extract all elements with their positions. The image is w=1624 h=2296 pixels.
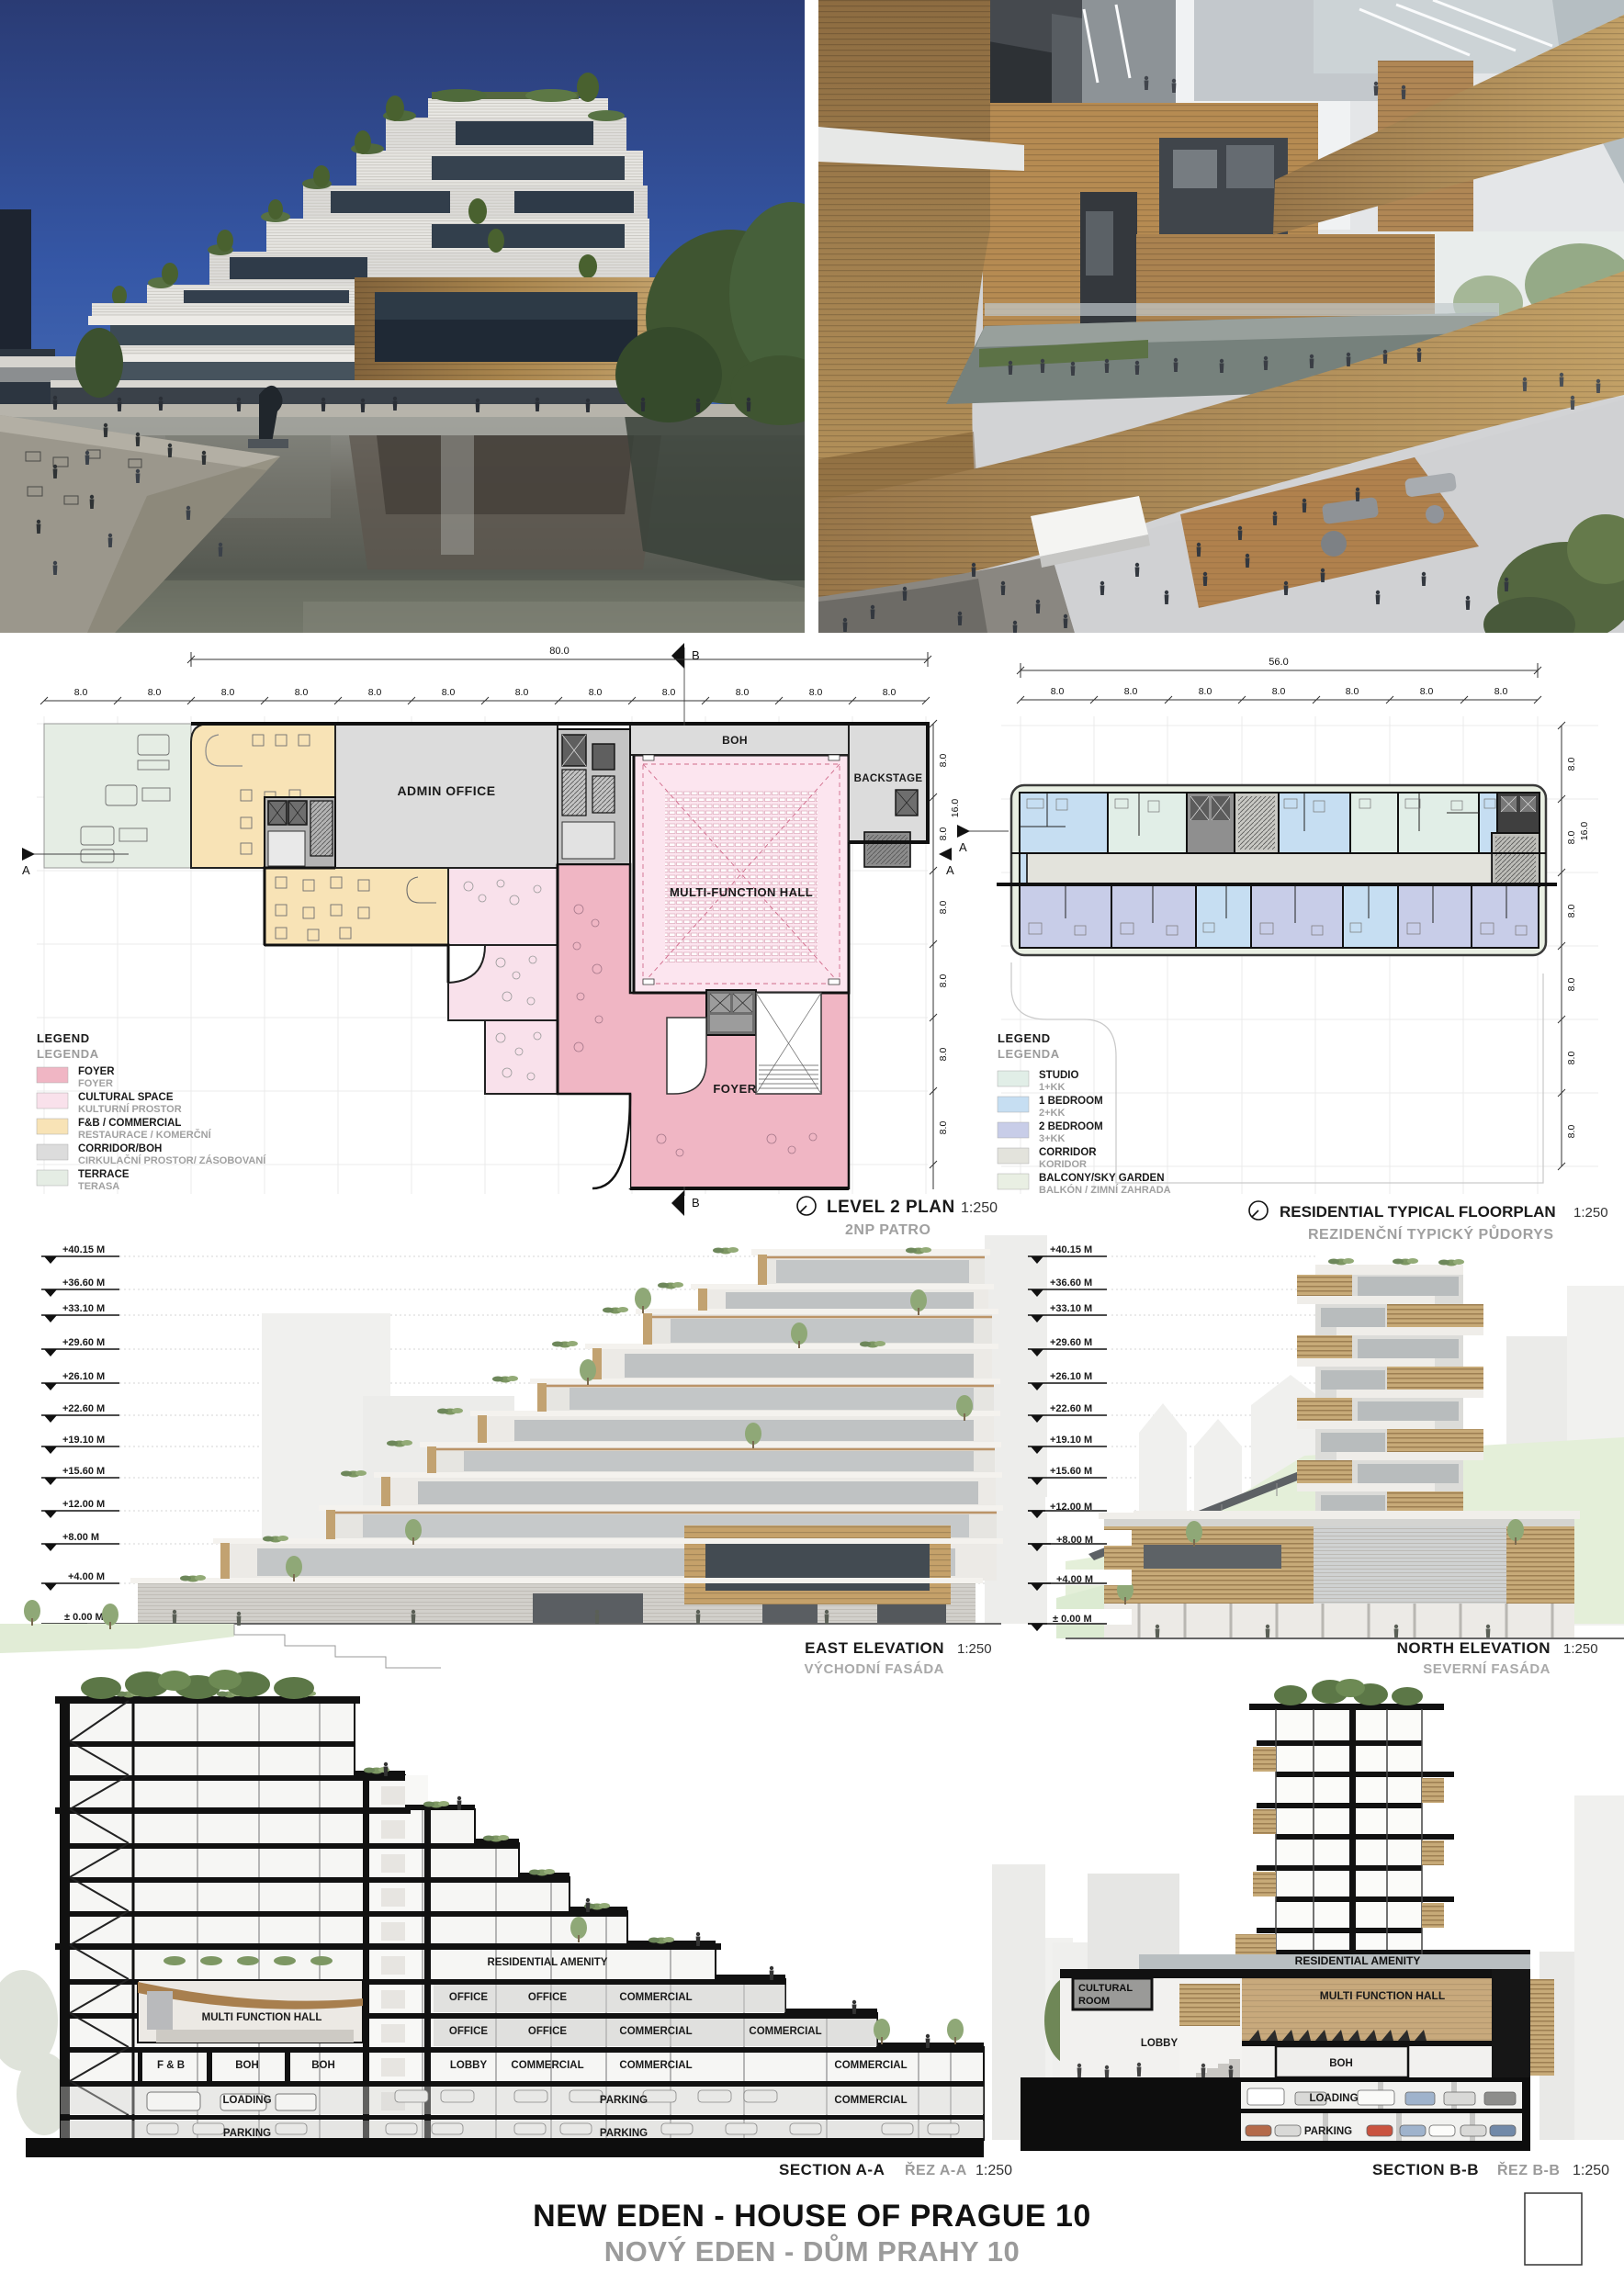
svg-text:8.0: 8.0	[148, 687, 162, 698]
svg-text:OFFICE: OFFICE	[528, 2026, 567, 2037]
svg-text:+33.10 M: +33.10 M	[1050, 1303, 1092, 1314]
svg-text:BOH: BOH	[235, 2060, 259, 2071]
svg-text:8.0: 8.0	[1346, 686, 1359, 697]
svg-text:+36.60 M: +36.60 M	[1050, 1277, 1092, 1289]
svg-text:+8.00 M: +8.00 M	[62, 1532, 99, 1543]
svg-text:1:250: 1:250	[976, 2163, 1012, 2178]
svg-text:MULTI-FUNCTION HALL: MULTI-FUNCTION HALL	[670, 885, 813, 899]
svg-text:NEW EDEN - HOUSE OF PRAGUE 10: NEW EDEN - HOUSE OF PRAGUE 10	[533, 2199, 1091, 2234]
svg-text:TERRACE: TERRACE	[78, 1169, 130, 1180]
svg-text:A: A	[22, 863, 30, 877]
svg-text:8.0: 8.0	[1566, 758, 1577, 771]
svg-text:COMMERCIAL: COMMERCIAL	[749, 2026, 821, 2037]
svg-text:8.0: 8.0	[938, 827, 949, 841]
svg-text:8.0: 8.0	[589, 687, 603, 698]
svg-text:8.0: 8.0	[938, 974, 949, 988]
svg-text:BOH: BOH	[311, 2060, 335, 2071]
svg-text:8.0: 8.0	[295, 687, 309, 698]
svg-text:NOVÝ EDEN - DŮM PRAHY 10: NOVÝ EDEN - DŮM PRAHY 10	[604, 2233, 1020, 2268]
svg-text:B: B	[692, 648, 700, 662]
svg-text:LEGEND: LEGEND	[37, 1031, 90, 1045]
svg-text:CULTURAL SPACE: CULTURAL SPACE	[78, 1092, 174, 1103]
svg-text:STUDIO: STUDIO	[1039, 1070, 1079, 1081]
svg-text:MULTI FUNCTION HALL: MULTI FUNCTION HALL	[1320, 1989, 1445, 2002]
svg-text:OFFICE: OFFICE	[528, 1992, 567, 2003]
svg-text:+26.10 M: +26.10 M	[62, 1371, 105, 1382]
svg-text:LOADING: LOADING	[1309, 2093, 1358, 2104]
svg-text:2NP PATRO: 2NP PATRO	[845, 1222, 930, 1238]
svg-text:A: A	[959, 840, 967, 854]
svg-text:SECTION B-B: SECTION B-B	[1372, 2161, 1479, 2178]
svg-text:ŘEZ A-A: ŘEZ A-A	[905, 2161, 967, 2178]
svg-text:LOBBY: LOBBY	[1141, 2038, 1179, 2049]
svg-text:+26.10 M: +26.10 M	[1050, 1371, 1092, 1382]
svg-text:SEVERNÍ FASÁDA: SEVERNÍ FASÁDA	[1423, 1661, 1551, 1677]
svg-text:F & B: F & B	[157, 2060, 185, 2071]
svg-text:8.0: 8.0	[883, 687, 897, 698]
svg-text:+12.00 M: +12.00 M	[62, 1499, 105, 1510]
svg-text:KORIDOR: KORIDOR	[1039, 1159, 1087, 1170]
svg-text:8.0: 8.0	[1124, 686, 1138, 697]
svg-text:1+KK: 1+KK	[1039, 1082, 1065, 1093]
svg-text:+40.15 M: +40.15 M	[1050, 1244, 1092, 1255]
svg-text:REZIDENČNÍ TYPICKÝ PŮDORYS: REZIDENČNÍ TYPICKÝ PŮDORYS	[1308, 1224, 1554, 1243]
svg-text:8.0: 8.0	[809, 687, 823, 698]
svg-text:+22.60 M: +22.60 M	[62, 1403, 105, 1414]
svg-text:RESTAURACE / KOMERČNÍ: RESTAURACE / KOMERČNÍ	[78, 1129, 212, 1141]
svg-text:PARKING: PARKING	[600, 2128, 648, 2139]
svg-text:COMMERCIAL: COMMERCIAL	[511, 2060, 583, 2071]
svg-text:ADMIN OFFICE: ADMIN OFFICE	[397, 783, 495, 798]
svg-text:8.0: 8.0	[1566, 978, 1577, 992]
svg-text:EAST ELEVATION: EAST ELEVATION	[805, 1639, 944, 1657]
svg-text:2 BEDROOM: 2 BEDROOM	[1039, 1121, 1103, 1132]
svg-text:BOH: BOH	[1329, 2058, 1353, 2069]
svg-text:FOYER: FOYER	[713, 1082, 756, 1096]
svg-text:LOBBY: LOBBY	[450, 2060, 488, 2071]
svg-text:COMMERCIAL: COMMERCIAL	[834, 2095, 907, 2106]
svg-text:FOYER: FOYER	[78, 1078, 113, 1089]
svg-text:8.0: 8.0	[368, 687, 382, 698]
svg-text:RESIDENTIAL AMENITY: RESIDENTIAL AMENITY	[488, 1957, 608, 1968]
svg-text:CORRIDOR: CORRIDOR	[1039, 1147, 1097, 1158]
svg-text:8.0: 8.0	[515, 687, 529, 698]
svg-text:1:250: 1:250	[1563, 1641, 1598, 1657]
svg-text:A: A	[946, 863, 954, 877]
svg-text:16.0: 16.0	[1579, 822, 1590, 841]
svg-text:COMMERCIAL: COMMERCIAL	[619, 1992, 692, 2003]
svg-text:CULTURAL: CULTURAL	[1078, 1983, 1133, 1994]
svg-text:COMMERCIAL: COMMERCIAL	[619, 2026, 692, 2037]
svg-text:SECTION A-A: SECTION A-A	[779, 2161, 885, 2178]
svg-text:+19.10 M: +19.10 M	[62, 1435, 105, 1446]
svg-text:+15.60 M: +15.60 M	[1050, 1466, 1092, 1477]
svg-text:+4.00 M: +4.00 M	[68, 1571, 105, 1582]
svg-text:LOADING: LOADING	[222, 2095, 271, 2106]
svg-text:CORRIDOR/BOH: CORRIDOR/BOH	[78, 1143, 162, 1154]
svg-text:2+KK: 2+KK	[1039, 1108, 1065, 1119]
svg-text:VÝCHODNÍ FASÁDA: VÝCHODNÍ FASÁDA	[804, 1660, 944, 1677]
svg-text:OFFICE: OFFICE	[449, 1992, 488, 2003]
svg-text:CIRKULAČNÍ PROSTOR/ ZÁSOBOVANÍ: CIRKULAČNÍ PROSTOR/ ZÁSOBOVANÍ	[78, 1154, 266, 1166]
svg-text:8.0: 8.0	[1272, 686, 1286, 697]
svg-text:+40.15 M: +40.15 M	[62, 1244, 105, 1255]
svg-text:F&B / COMMERCIAL: F&B / COMMERCIAL	[78, 1118, 181, 1129]
svg-text:OFFICE: OFFICE	[449, 2026, 488, 2037]
svg-text:BALKÓN / ZIMNÍ ZAHRADA: BALKÓN / ZIMNÍ ZAHRADA	[1039, 1184, 1171, 1196]
svg-text:8.0: 8.0	[736, 687, 750, 698]
svg-text:BACKSTAGE: BACKSTAGE	[854, 773, 923, 784]
svg-text:8.0: 8.0	[1566, 831, 1577, 845]
svg-text:16.0: 16.0	[950, 799, 961, 818]
svg-text:8.0: 8.0	[938, 754, 949, 768]
svg-text:RESIDENTIAL TYPICAL FLOORPLAN: RESIDENTIAL TYPICAL FLOORPLAN	[1280, 1203, 1556, 1221]
svg-text:+29.60 M: +29.60 M	[1050, 1337, 1092, 1348]
svg-text:PARKING: PARKING	[600, 2095, 648, 2106]
svg-text:+29.60 M: +29.60 M	[62, 1337, 105, 1348]
svg-text:BOH: BOH	[722, 734, 748, 747]
svg-text:80.0: 80.0	[549, 646, 569, 657]
svg-text:LEGENDA: LEGENDA	[37, 1047, 99, 1061]
svg-text:FOYER: FOYER	[78, 1066, 115, 1077]
svg-text:1 BEDROOM: 1 BEDROOM	[1039, 1096, 1103, 1107]
svg-text:KULTURNÍ PROSTOR: KULTURNÍ PROSTOR	[78, 1103, 182, 1115]
svg-text:RESIDENTIAL AMENITY: RESIDENTIAL AMENITY	[1295, 1954, 1421, 1967]
svg-text:8.0: 8.0	[1566, 1125, 1577, 1139]
svg-text:+15.60 M: +15.60 M	[62, 1466, 105, 1477]
svg-text:LEGEND: LEGEND	[998, 1031, 1051, 1045]
svg-text:± 0.00 M: ± 0.00 M	[1053, 1614, 1092, 1625]
svg-text:+36.60 M: +36.60 M	[62, 1277, 105, 1289]
svg-text:8.0: 8.0	[662, 687, 676, 698]
svg-text:PARKING: PARKING	[1304, 2126, 1352, 2137]
svg-text:3+KK: 3+KK	[1039, 1133, 1065, 1144]
svg-text:56.0: 56.0	[1269, 657, 1288, 668]
svg-text:8.0: 8.0	[938, 1048, 949, 1062]
svg-text:+22.60 M: +22.60 M	[1050, 1403, 1092, 1414]
svg-text:ŘEZ B-B: ŘEZ B-B	[1497, 2161, 1560, 2178]
svg-text:1:250: 1:250	[957, 1641, 992, 1657]
svg-text:+19.10 M: +19.10 M	[1050, 1435, 1092, 1446]
svg-text:8.0: 8.0	[938, 901, 949, 915]
svg-text:COMMERCIAL: COMMERCIAL	[619, 2060, 692, 2071]
svg-text:1:250: 1:250	[961, 1200, 998, 1216]
svg-text:8.0: 8.0	[442, 687, 456, 698]
svg-text:NORTH ELEVATION: NORTH ELEVATION	[1397, 1639, 1551, 1657]
svg-text:8.0: 8.0	[1566, 905, 1577, 918]
svg-text:ROOM: ROOM	[1078, 1996, 1110, 2007]
svg-text:± 0.00 M: ± 0.00 M	[64, 1612, 104, 1623]
svg-text:8.0: 8.0	[1566, 1052, 1577, 1065]
svg-text:LEVEL 2 PLAN: LEVEL 2 PLAN	[827, 1198, 955, 1217]
svg-text:TERASA: TERASA	[78, 1181, 119, 1192]
svg-text:8.0: 8.0	[1420, 686, 1434, 697]
svg-text:8.0: 8.0	[1494, 686, 1508, 697]
svg-text:8.0: 8.0	[221, 687, 235, 698]
svg-text:COMMERCIAL: COMMERCIAL	[834, 2060, 907, 2071]
svg-text:BALCONY/SKY GARDEN: BALCONY/SKY GARDEN	[1039, 1173, 1165, 1184]
svg-text:LEGENDA: LEGENDA	[998, 1047, 1060, 1061]
svg-text:8.0: 8.0	[1199, 686, 1212, 697]
svg-text:1:250: 1:250	[1573, 1205, 1608, 1221]
svg-text:8.0: 8.0	[1051, 686, 1065, 697]
svg-text:8.0: 8.0	[938, 1121, 949, 1135]
svg-text:MULTI FUNCTION HALL: MULTI FUNCTION HALL	[202, 2012, 322, 2023]
svg-text:+33.10 M: +33.10 M	[62, 1303, 105, 1314]
svg-text:PARKING: PARKING	[223, 2128, 271, 2139]
svg-text:8.0: 8.0	[74, 687, 88, 698]
svg-text:B: B	[692, 1196, 700, 1210]
svg-text:1:250: 1:250	[1573, 2163, 1609, 2178]
